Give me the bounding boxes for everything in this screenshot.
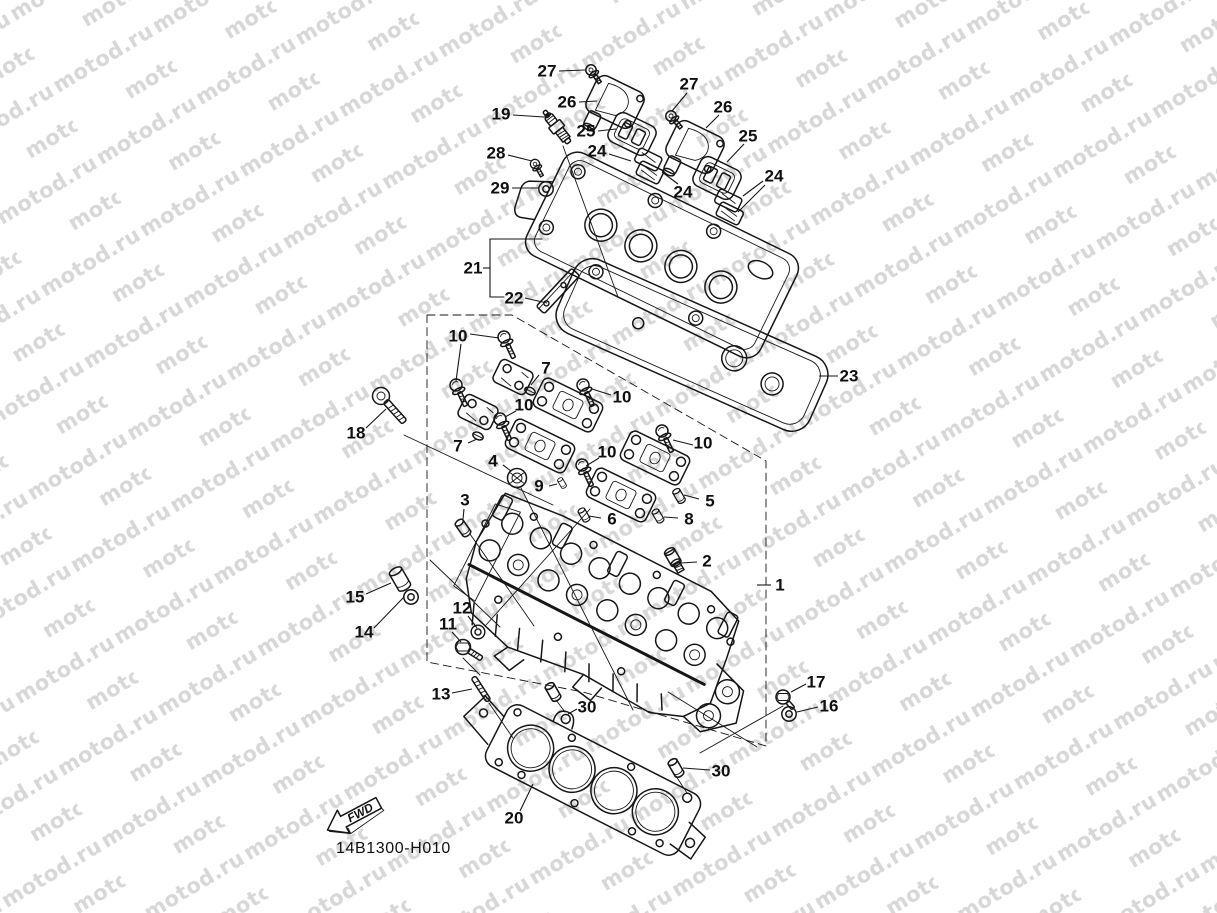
callout-label-27: 27: [538, 62, 557, 81]
callout-label-15: 15: [346, 588, 365, 607]
callout-label-20: 20: [505, 809, 524, 828]
parts-diagram-cylinder-head: motod.ru motod.ru: [0, 0, 1217, 913]
callout-label-11: 11: [439, 615, 457, 634]
callout-label-26: 26: [714, 98, 733, 117]
callout-label-30: 30: [712, 762, 731, 781]
callout-label-1: 1: [775, 576, 784, 595]
callout-label-6: 6: [607, 510, 616, 529]
callout-label-27: 27: [680, 75, 699, 94]
callout-label-18: 18: [347, 424, 366, 443]
callout-label-3: 3: [460, 491, 469, 510]
callout-label-5: 5: [705, 492, 714, 511]
callout-label-24: 24: [674, 183, 693, 202]
diagram-part-code: 14B1300-H010: [336, 840, 451, 857]
callout-label-8: 8: [684, 510, 693, 529]
callout-label-10: 10: [449, 327, 468, 346]
callout-label-10: 10: [694, 434, 713, 453]
callout-label-13: 13: [432, 685, 451, 704]
callout-label-10: 10: [598, 443, 617, 462]
callout-label-22: 22: [505, 289, 524, 308]
callout-label-10: 10: [613, 388, 632, 407]
callout-label-19: 19: [492, 105, 511, 124]
callout-label-24: 24: [765, 167, 784, 186]
callout-label-7: 7: [453, 437, 462, 456]
callout-label-17: 17: [807, 673, 826, 692]
callout-label-14: 14: [355, 623, 374, 642]
callout-label-30: 30: [578, 698, 597, 717]
callout-label-4: 4: [488, 452, 498, 471]
callout-label-23: 23: [840, 367, 859, 386]
callout-label-25: 25: [739, 127, 758, 146]
callout-label-21: 21: [464, 259, 483, 278]
callout-label-26: 26: [558, 93, 577, 112]
callout-label-7: 7: [541, 359, 550, 378]
callout-label-16: 16: [820, 697, 839, 716]
callout-label-29: 29: [491, 179, 510, 198]
callout-label-24: 24: [588, 142, 607, 161]
callout-label-25: 25: [577, 122, 596, 141]
callout-label-28: 28: [487, 144, 506, 163]
callout-label-2: 2: [702, 552, 711, 571]
callout-label-10: 10: [515, 396, 534, 415]
callout-label-9: 9: [534, 477, 543, 496]
